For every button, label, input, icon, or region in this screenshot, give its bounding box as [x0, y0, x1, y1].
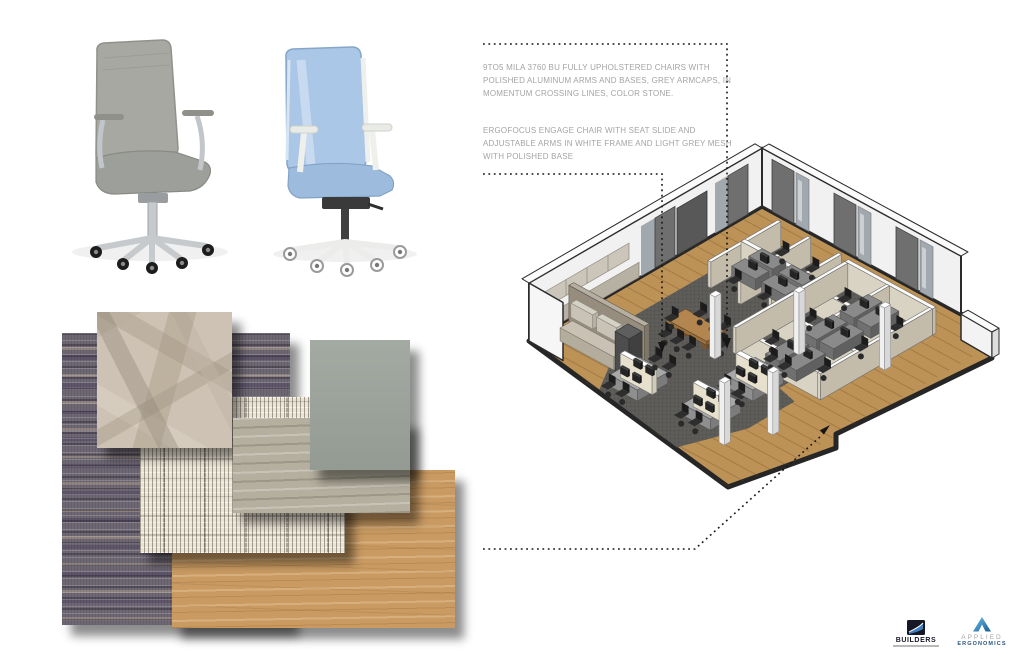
applied-logo-line2: ERGONOMICS — [950, 641, 1014, 647]
swatch-crossing-lines-fabric — [97, 312, 232, 448]
builders-logo-tagline — [893, 645, 939, 647]
applied-ergonomics-logo-icon — [969, 616, 995, 633]
builders-logo-text: BUILDERS — [888, 637, 944, 644]
builders-logo: BUILDERS — [888, 620, 944, 647]
swatch-sage-fabric — [310, 340, 410, 470]
spec-note-mila-chair: 9TO5 MILA 3760 BU FULLY UPHOLSTERED CHAI… — [483, 61, 745, 100]
applied-ergonomics-logo: APPLIED ERGONOMICS — [950, 616, 1014, 647]
builders-logo-icon — [906, 620, 926, 636]
mood-board-page: 9TO5 MILA 3760 BU FULLY UPHOLSTERED CHAI… — [0, 0, 1024, 663]
applied-logo-line1: APPLIED — [950, 634, 1014, 641]
spec-note-engage-chair: ERGOFOCUS ENGAGE CHAIR WITH SEAT SLIDE A… — [483, 124, 745, 163]
